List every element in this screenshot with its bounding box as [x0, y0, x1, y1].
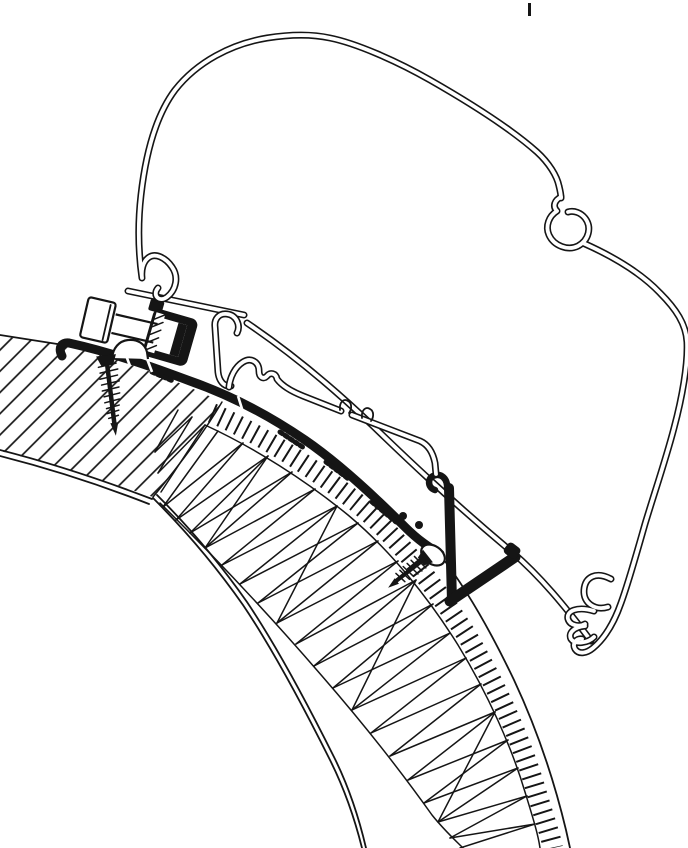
technical-drawing	[0, 0, 688, 848]
drawing-canvas	[0, 0, 688, 848]
registration-tick	[528, 3, 531, 16]
